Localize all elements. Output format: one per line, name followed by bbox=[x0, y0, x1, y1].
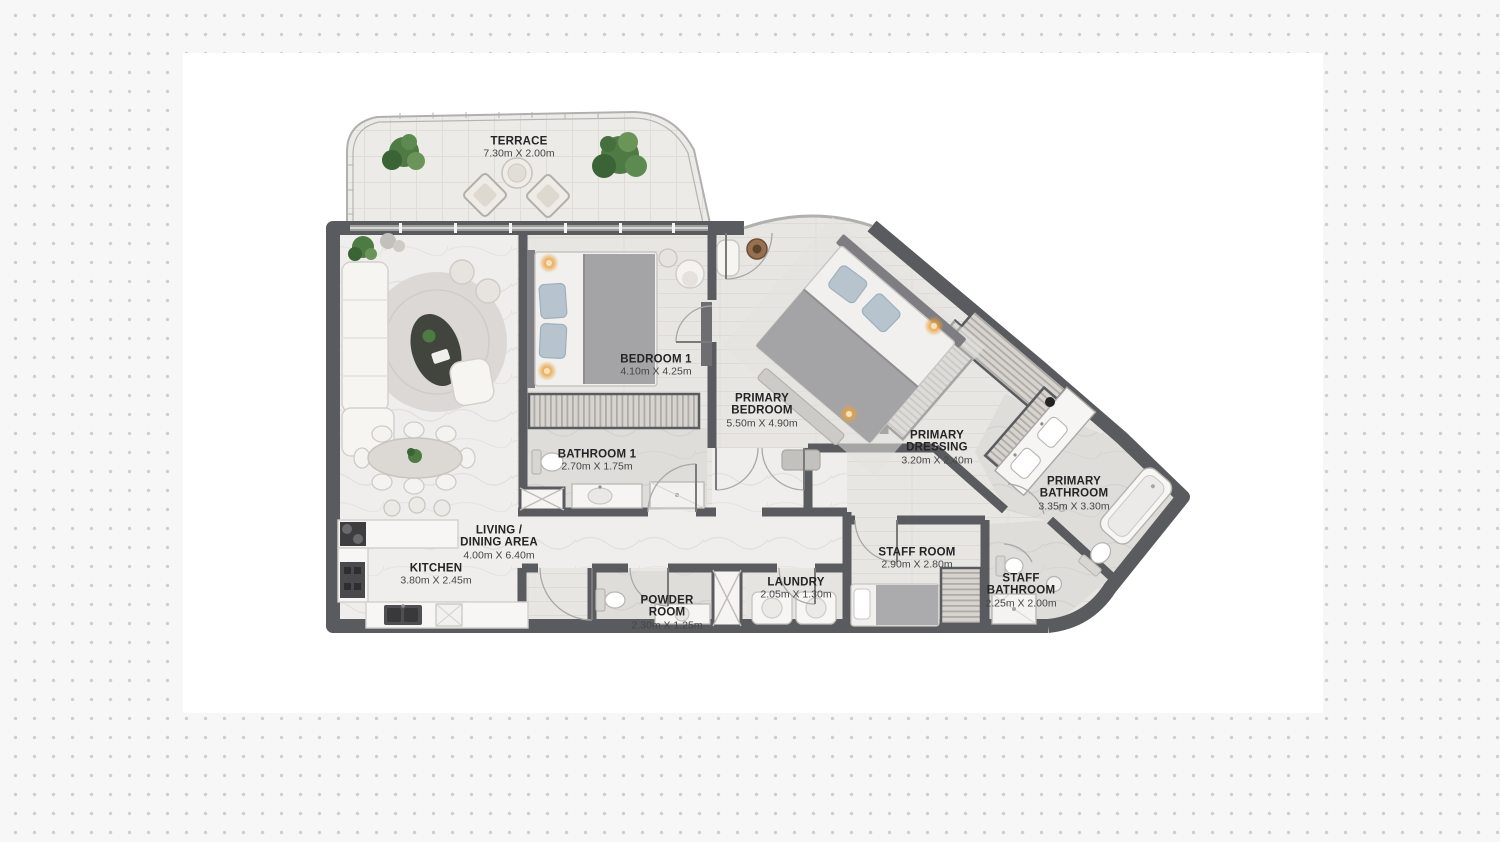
bar-stool-2 bbox=[409, 497, 425, 513]
duct-shaft-hall bbox=[520, 488, 564, 510]
bed-1-headboard bbox=[527, 250, 535, 388]
coffee-table-plant bbox=[423, 330, 436, 343]
bed-1-pillow-1 bbox=[539, 283, 567, 319]
terrace-area bbox=[347, 112, 711, 228]
terrace-table bbox=[502, 158, 532, 188]
kitchen-sink bbox=[384, 604, 422, 625]
dishwasher bbox=[436, 604, 462, 626]
pouf-2 bbox=[476, 279, 500, 303]
pouf-1 bbox=[450, 260, 474, 284]
wash-basin bbox=[1047, 577, 1062, 592]
bed-1-side-table bbox=[659, 249, 677, 267]
toilet bbox=[996, 556, 1023, 576]
kitchen-appliance bbox=[340, 562, 365, 598]
armchair bbox=[448, 357, 495, 407]
staff-bed-pillow bbox=[854, 589, 870, 619]
entry-console bbox=[717, 240, 739, 276]
bedroom-1-wardrobe bbox=[529, 394, 699, 428]
vanity-accessory bbox=[1045, 397, 1055, 407]
primary-bedroom-bench bbox=[782, 450, 820, 470]
sofa bbox=[342, 262, 388, 412]
floor-plan-drawing bbox=[0, 0, 1500, 842]
entry-plant-pot bbox=[747, 239, 767, 259]
bed-1-pillow-2 bbox=[539, 323, 567, 358]
staff-room-wardrobe bbox=[941, 568, 981, 624]
bed-1-blanket bbox=[584, 254, 655, 384]
floor-plan-page: TERRACE 7.30m X 2.00m BEDROOM 1 4.10m X … bbox=[0, 0, 1500, 842]
bar-stool-1 bbox=[384, 500, 400, 516]
bedroom-1-armchair bbox=[676, 260, 704, 288]
staff-room-furniture bbox=[851, 584, 939, 626]
duct-shaft-laundry bbox=[713, 570, 741, 626]
shower bbox=[992, 594, 1036, 624]
bedroom-1-cabinet bbox=[701, 302, 712, 366]
wash-basin bbox=[588, 488, 612, 504]
bar-stool-3 bbox=[434, 500, 450, 516]
staff-bed-blanket bbox=[876, 585, 938, 625]
wash-basin bbox=[675, 607, 689, 621]
